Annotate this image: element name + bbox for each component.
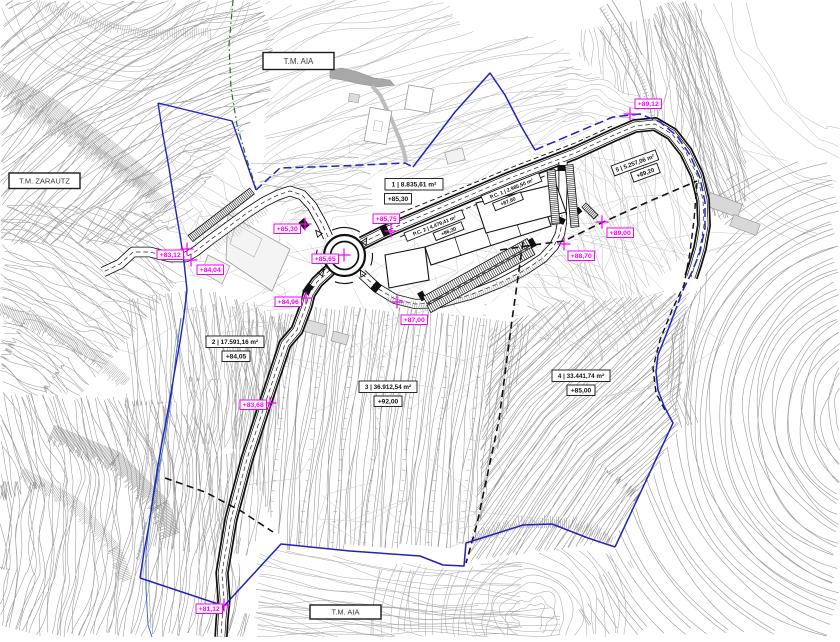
svg-text:4 | 33.441,74 m²: 4 | 33.441,74 m² [558,373,604,380]
svg-text:T.M. AIA: T.M. AIA [284,57,314,66]
svg-text:+83,12: +83,12 [160,252,181,259]
svg-text:+88,70: +88,70 [571,253,592,260]
svg-text:T.M. AIA: T.M. AIA [332,608,360,617]
svg-text:+84,96: +84,96 [278,299,299,306]
svg-text:1 | 8.835,61 m²: 1 | 8.835,61 m² [392,182,438,189]
svg-text:+83,68: +83,68 [243,402,264,409]
svg-text:+84,04: +84,04 [200,267,221,274]
svg-text:+81,12: +81,12 [199,606,220,613]
svg-text:3 | 36.912,54 m²: 3 | 36.912,54 m² [365,384,411,391]
svg-text:+89,00: +89,00 [610,230,631,237]
svg-text:T.M. ZARAUTZ: T.M. ZARAUTZ [19,176,70,185]
svg-text:+87,00: +87,00 [404,317,425,324]
svg-text:+85,65: +85,65 [315,256,336,263]
svg-text:+89,12: +89,12 [638,101,659,108]
svg-text:+85,30: +85,30 [388,196,409,203]
svg-text:+85,75: +85,75 [376,216,397,223]
svg-text:+85,30: +85,30 [277,226,298,233]
svg-text:2 | 17.591,16 m²: 2 | 17.591,16 m² [212,339,258,346]
svg-text:+84,05: +84,05 [226,354,247,361]
svg-text:+85,00: +85,00 [571,388,592,395]
svg-text:+92,00: +92,00 [378,399,399,406]
